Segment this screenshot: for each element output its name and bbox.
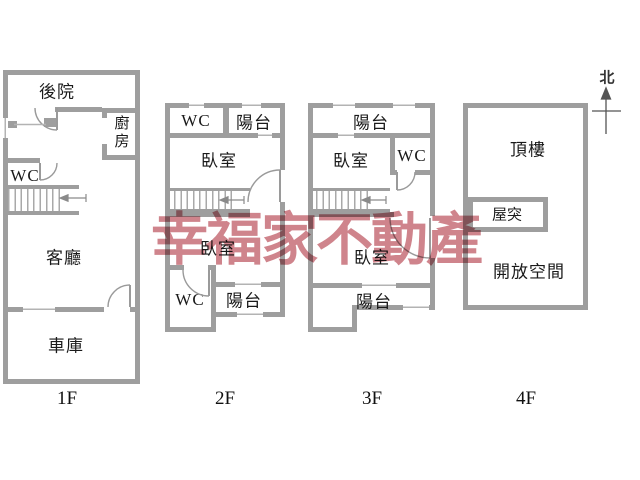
stair-rail (3, 211, 79, 215)
room-label-garage: 車庫 (48, 332, 84, 357)
room-label-wc-3f: WC (397, 146, 426, 166)
room-label-wc-2f-upper: WC (181, 111, 210, 131)
window (338, 133, 354, 138)
wall-segment (223, 108, 229, 133)
floor-label-3f: 3F (362, 388, 382, 410)
room-label-open-space: 開放空間 (493, 258, 565, 283)
wall-segment (583, 103, 588, 310)
window (403, 305, 429, 310)
stairs-1f (8, 189, 64, 211)
room-label-balcony-3f-lower: 陽台 (356, 288, 392, 313)
compass-arrow-icon (592, 88, 621, 134)
watermark-text: 幸福家不動產 (151, 212, 481, 269)
stairs-2f (174, 191, 236, 209)
window (189, 103, 204, 108)
stairs-3f (316, 191, 372, 209)
floor-label-2f: 2F (215, 388, 235, 410)
window (333, 103, 355, 108)
wall-segment (130, 307, 140, 312)
door-opening (397, 170, 415, 175)
window (242, 103, 261, 108)
window (393, 103, 415, 108)
wall-segment (3, 70, 140, 75)
room-label-bedroom-2f-upper: 臥室 (201, 147, 237, 172)
window (237, 312, 263, 317)
room-label-wc-2f-lower: WC (175, 290, 204, 310)
door-opening (102, 118, 107, 144)
room-label-backyard: 後院 (39, 78, 75, 103)
wall-segment (308, 103, 435, 108)
room-label-penthouse: 屋突 (492, 204, 522, 225)
floor-label-4f: 4F (516, 388, 536, 410)
wall-segment (3, 379, 140, 384)
room-label-living-room: 客廳 (46, 244, 82, 269)
door-opening (40, 158, 57, 163)
door-opening (280, 170, 285, 202)
door-jamb (8, 121, 17, 128)
wall-segment (55, 107, 102, 112)
window (23, 307, 55, 312)
wall-segment (463, 305, 588, 310)
room-label-balcony-3f-upper: 陽台 (353, 109, 389, 134)
room-label-bedroom-3f-upper: 臥室 (333, 147, 369, 172)
wall-segment (3, 307, 23, 312)
room-label-roof: 頂樓 (510, 136, 546, 161)
room-label-wc-1f: WC (10, 166, 39, 186)
room-label-balcony-2f-upper: 陽台 (236, 109, 272, 134)
floor-plan-canvas: 後院 廚房 WC 客廳 車庫 1F WC 陽台 臥室 臥室 WC 陽台 (0, 0, 640, 480)
room-label-balcony-2f-lower: 陽台 (226, 287, 262, 312)
floor-label-1f: 1F (57, 388, 77, 410)
wall-segment (463, 103, 588, 108)
room-label-kitchen: 廚房 (111, 115, 132, 151)
window (258, 133, 272, 138)
compass-north-label: 北 (599, 67, 614, 88)
wall-segment (55, 307, 104, 312)
wall-segment (308, 327, 357, 332)
door-jamb (44, 118, 57, 127)
